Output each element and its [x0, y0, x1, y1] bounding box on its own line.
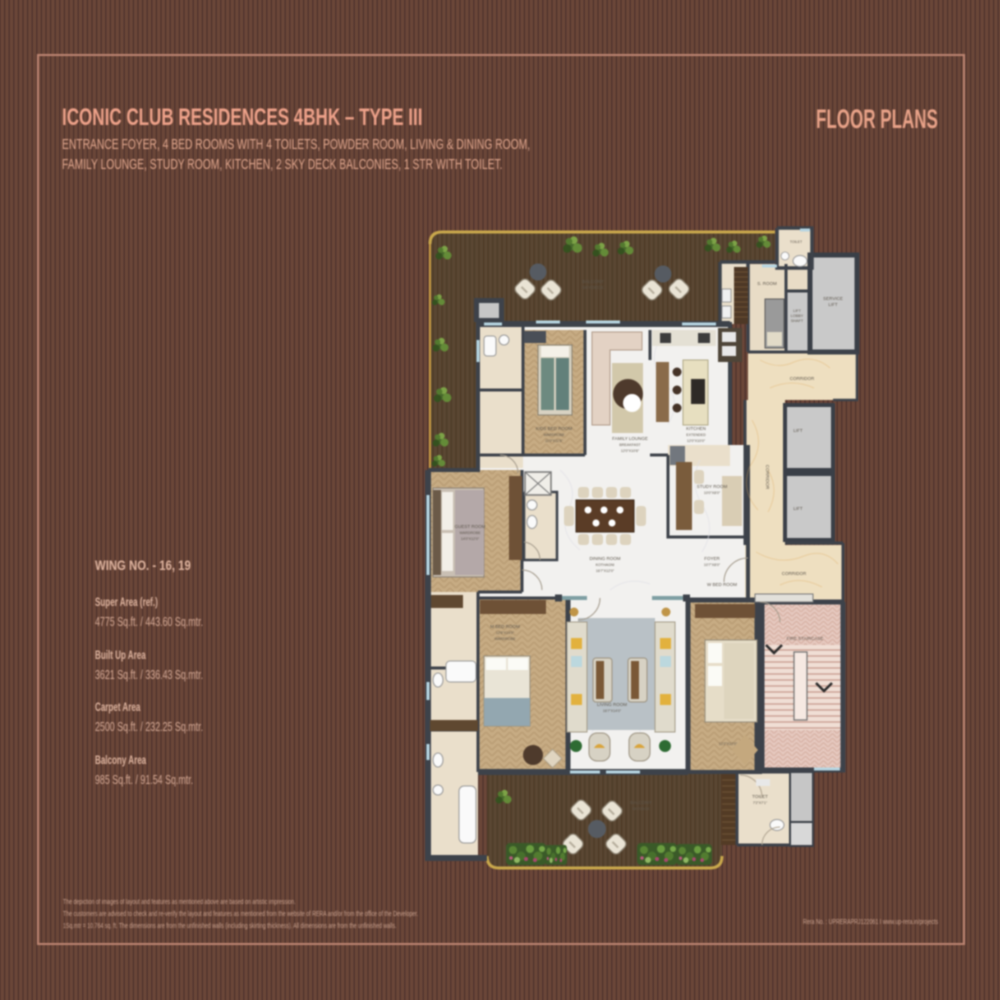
svg-text:SERVICE: SERVICE [823, 296, 843, 301]
svg-text:KOTHAGNI: KOTHAGNI [596, 563, 615, 567]
svg-text:STUDY ROOM: STUDY ROOM [697, 484, 728, 489]
svg-text:10'0"X8'0": 10'0"X8'0" [704, 491, 721, 495]
svg-text:LIVING ROOM: LIVING ROOM [597, 702, 627, 707]
svg-text:SHAFT: SHAFT [791, 319, 804, 323]
svg-text:16'7"X12'0": 16'7"X12'0" [596, 569, 615, 573]
svg-text:WARDROBE: WARDROBE [459, 531, 481, 535]
svg-text:CORRIDOR: CORRIDOR [782, 571, 807, 576]
svg-text:LIFT: LIFT [793, 428, 803, 433]
svg-text:11'0"X11'6": 11'0"X11'6" [545, 439, 564, 443]
svg-text:TOILET: TOILET [752, 794, 768, 799]
svg-text:FOYER: FOYER [704, 556, 720, 561]
svg-text:LOBBY: LOBBY [791, 314, 804, 318]
svg-text:WARDROBE: WARDROBE [543, 433, 565, 437]
svg-text:10'7"X8'0": 10'7"X8'0" [704, 563, 721, 567]
svg-text:DINING ROOM: DINING ROOM [590, 556, 621, 561]
svg-text:S. ROOM: S. ROOM [757, 281, 777, 286]
svg-text:CORRIDOR: CORRIDOR [790, 376, 815, 381]
svg-text:12'2"X12'0": 12'2"X12'0" [719, 742, 738, 746]
svg-text:14'0"X12'0": 14'0"X12'0" [461, 537, 480, 541]
svg-text:EXTENDED: EXTENDED [686, 433, 706, 437]
svg-text:12'0"X10'6": 12'0"X10'6" [621, 449, 640, 453]
svg-text:KITCHEN: KITCHEN [686, 426, 706, 431]
svg-text:FIRE STAIRCASE: FIRE STAIRCASE [787, 636, 824, 641]
svg-text:BALCONY: BALCONY [630, 800, 652, 805]
svg-text:CORRIDOR: CORRIDOR [765, 465, 770, 490]
svg-text:W BED ROOM: W BED ROOM [707, 582, 737, 587]
svg-text:M BED ROOM: M BED ROOM [490, 624, 520, 629]
svg-text:16'7"X14'0": 16'7"X14'0" [603, 709, 622, 713]
svg-text:LIFT: LIFT [828, 302, 838, 307]
svg-text:KIDS BED ROOM: KIDS BED ROOM [536, 426, 573, 431]
svg-text:BREAKFAST: BREAKFAST [619, 443, 641, 447]
svg-text:LIFT: LIFT [793, 309, 801, 313]
svg-text:WARDROBE: WARDROBE [494, 637, 516, 641]
svg-text:SKYDECK: SKYDECK [582, 285, 604, 290]
svg-text:7'2"X7'1": 7'2"X7'1" [753, 801, 768, 805]
svg-text:FAMILY LOUNGE: FAMILY LOUNGE [612, 436, 648, 441]
svg-text:12'6"X14'0": 12'6"X14'0" [496, 631, 515, 635]
svg-text:12'0"X10'0": 12'0"X10'0" [687, 439, 706, 443]
svg-text:BALCONY: BALCONY [582, 279, 604, 284]
svg-text:GUEST ROOM: GUEST ROOM [455, 524, 486, 529]
svg-text:LIFT: LIFT [793, 506, 803, 511]
svg-text:SKYDECK: SKYDECK [632, 807, 650, 811]
svg-text:TOILET: TOILET [790, 240, 803, 244]
